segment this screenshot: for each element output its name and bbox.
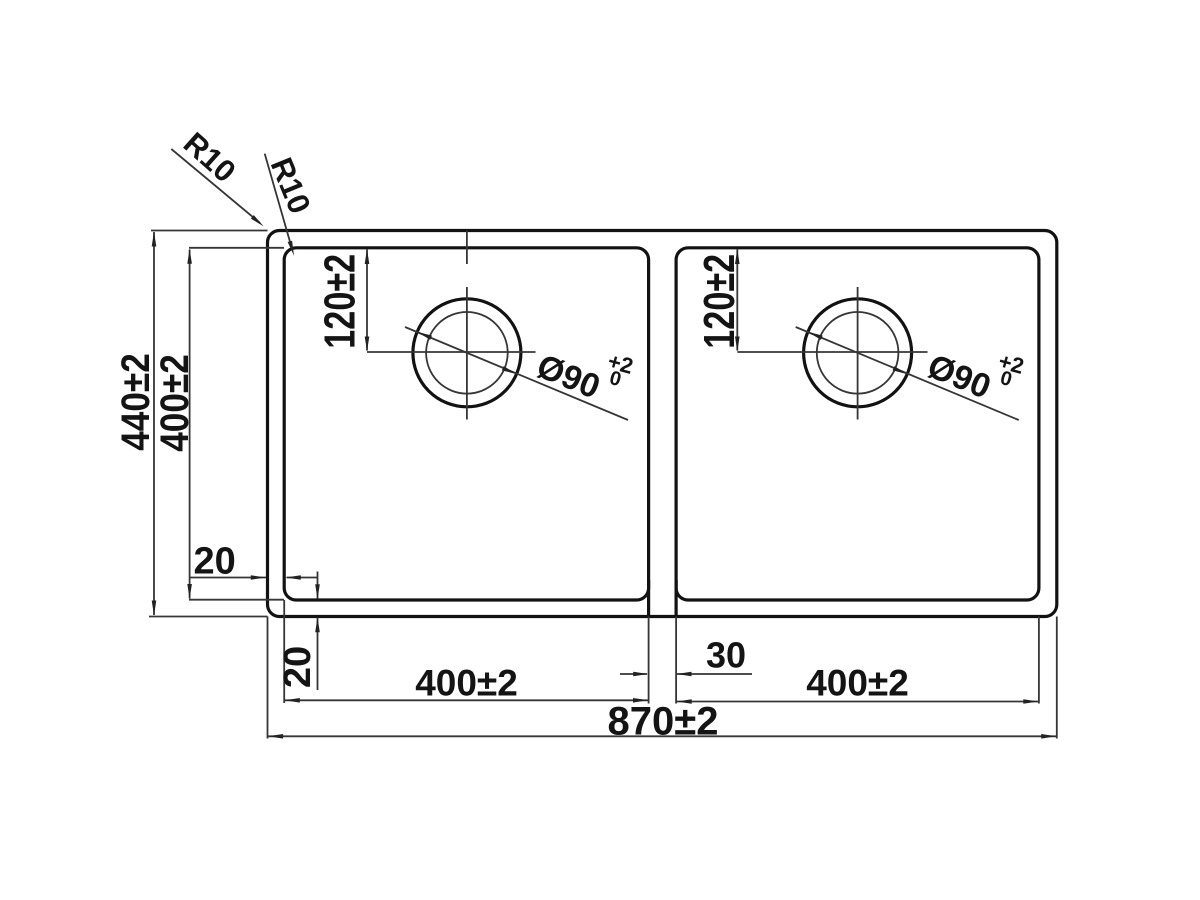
svg-text:400±2: 400±2 (806, 663, 909, 704)
svg-text:Ø90: Ø90 (922, 347, 996, 406)
svg-text:R10: R10 (264, 153, 318, 219)
svg-text:R10: R10 (177, 125, 243, 189)
svg-text:20: 20 (277, 646, 319, 688)
svg-text:400±2: 400±2 (415, 663, 518, 704)
svg-text:870±2: 870±2 (608, 700, 719, 744)
svg-text:20: 20 (194, 541, 236, 583)
svg-text:120±2: 120±2 (695, 254, 744, 349)
svg-text:400±2: 400±2 (152, 354, 197, 452)
svg-text:30: 30 (706, 635, 746, 676)
svg-text:120±2: 120±2 (315, 254, 364, 349)
svg-text:Ø90: Ø90 (532, 347, 606, 406)
svg-text:440±2: 440±2 (113, 353, 158, 451)
